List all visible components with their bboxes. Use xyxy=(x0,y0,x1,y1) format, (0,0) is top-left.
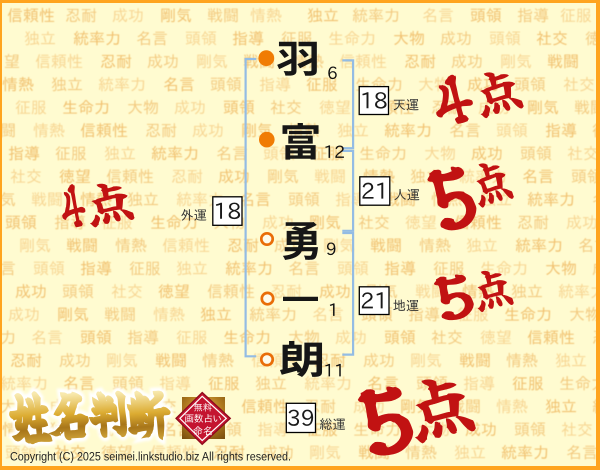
svg-text:Copyright (C) 2025 seimei.link: Copyright (C) 2025 seimei.linkstudio.biz… xyxy=(10,452,291,464)
